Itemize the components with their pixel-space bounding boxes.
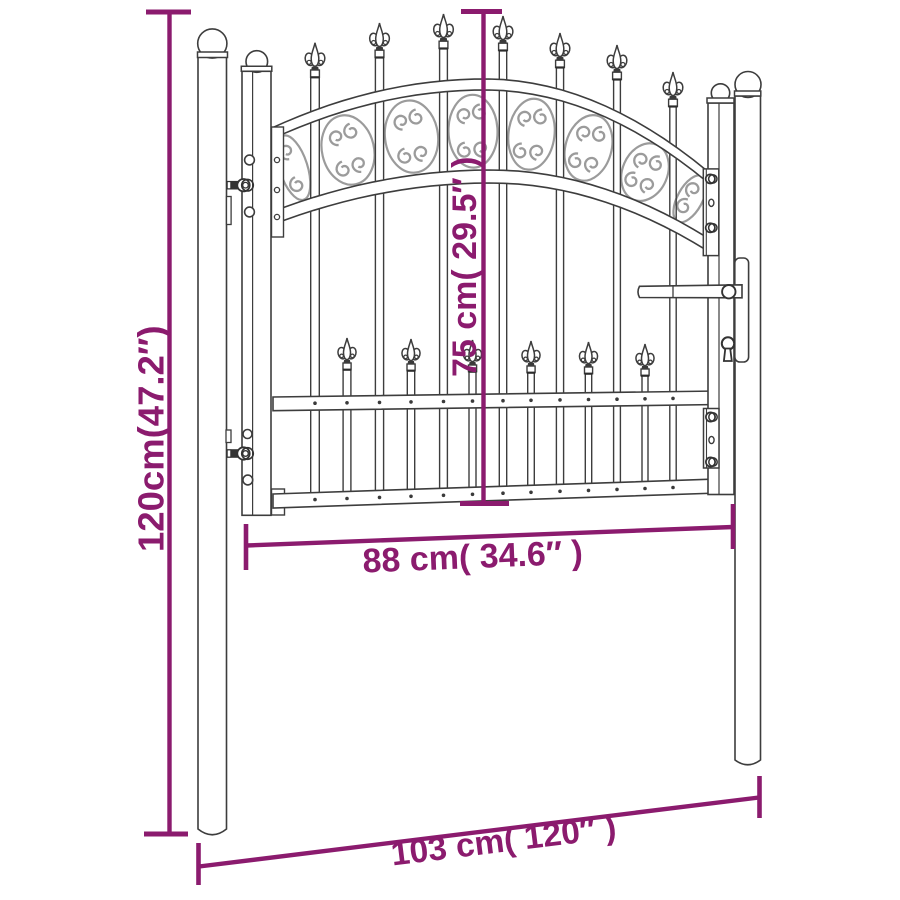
svg-text:120cm(47.2″): 120cm(47.2″) xyxy=(131,326,172,553)
svg-text:75 cm( 29.5″ ): 75 cm( 29.5″ ) xyxy=(446,157,484,377)
